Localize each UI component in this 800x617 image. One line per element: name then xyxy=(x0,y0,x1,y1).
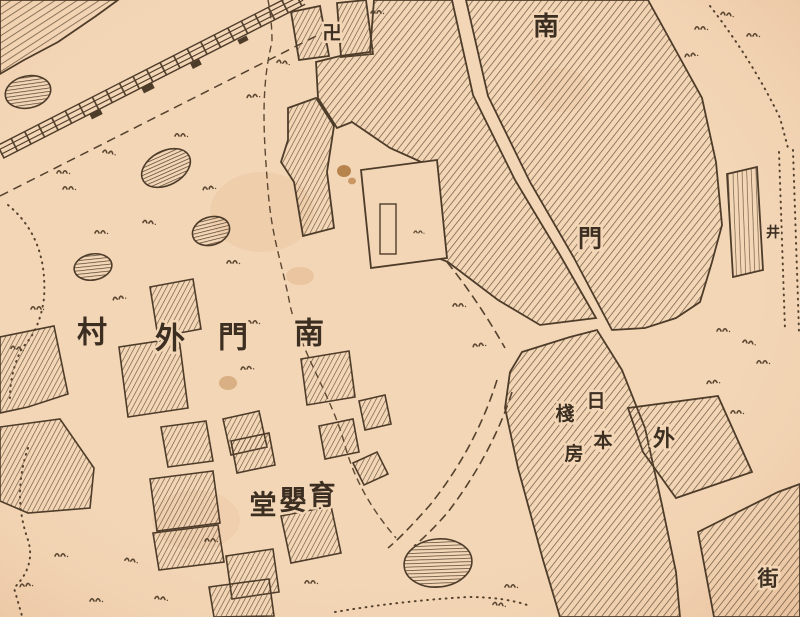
house xyxy=(150,471,220,531)
warehouse-char: 房 xyxy=(564,442,583,465)
village-name-char: 村 xyxy=(77,316,107,351)
orphanage-char: 嬰 xyxy=(280,486,307,517)
warehouse-char: 本 xyxy=(593,429,612,452)
courtyard-building xyxy=(361,160,447,268)
village-name-char: 外 xyxy=(155,322,185,357)
village-name-char: 南 xyxy=(294,317,324,352)
house xyxy=(319,419,359,459)
street-name-char: 外 xyxy=(653,426,675,452)
well-symbol: 井 xyxy=(766,224,780,241)
house xyxy=(359,395,391,430)
house xyxy=(161,421,213,467)
orphanage-char: 堂 xyxy=(250,491,277,522)
warehouse-char: 棧 xyxy=(555,402,574,425)
house xyxy=(301,351,355,405)
house xyxy=(153,525,224,570)
warehouse-char: 日 xyxy=(586,390,605,412)
historical-map: 村 外 門 南 堂 嬰 育 南 門 外 街 日 本 棧 房 井 卍 xyxy=(0,0,800,617)
village-name-char: 門 xyxy=(218,321,248,356)
temple-symbol: 卍 xyxy=(322,22,341,44)
block-east-annex xyxy=(727,167,763,277)
block-temple-east xyxy=(337,0,373,57)
street-name-char: 門 xyxy=(578,224,602,253)
street-name-char: 南 xyxy=(533,12,559,42)
house xyxy=(231,433,275,473)
orphanage-char: 育 xyxy=(309,480,336,512)
street-name-char: 街 xyxy=(757,566,779,591)
